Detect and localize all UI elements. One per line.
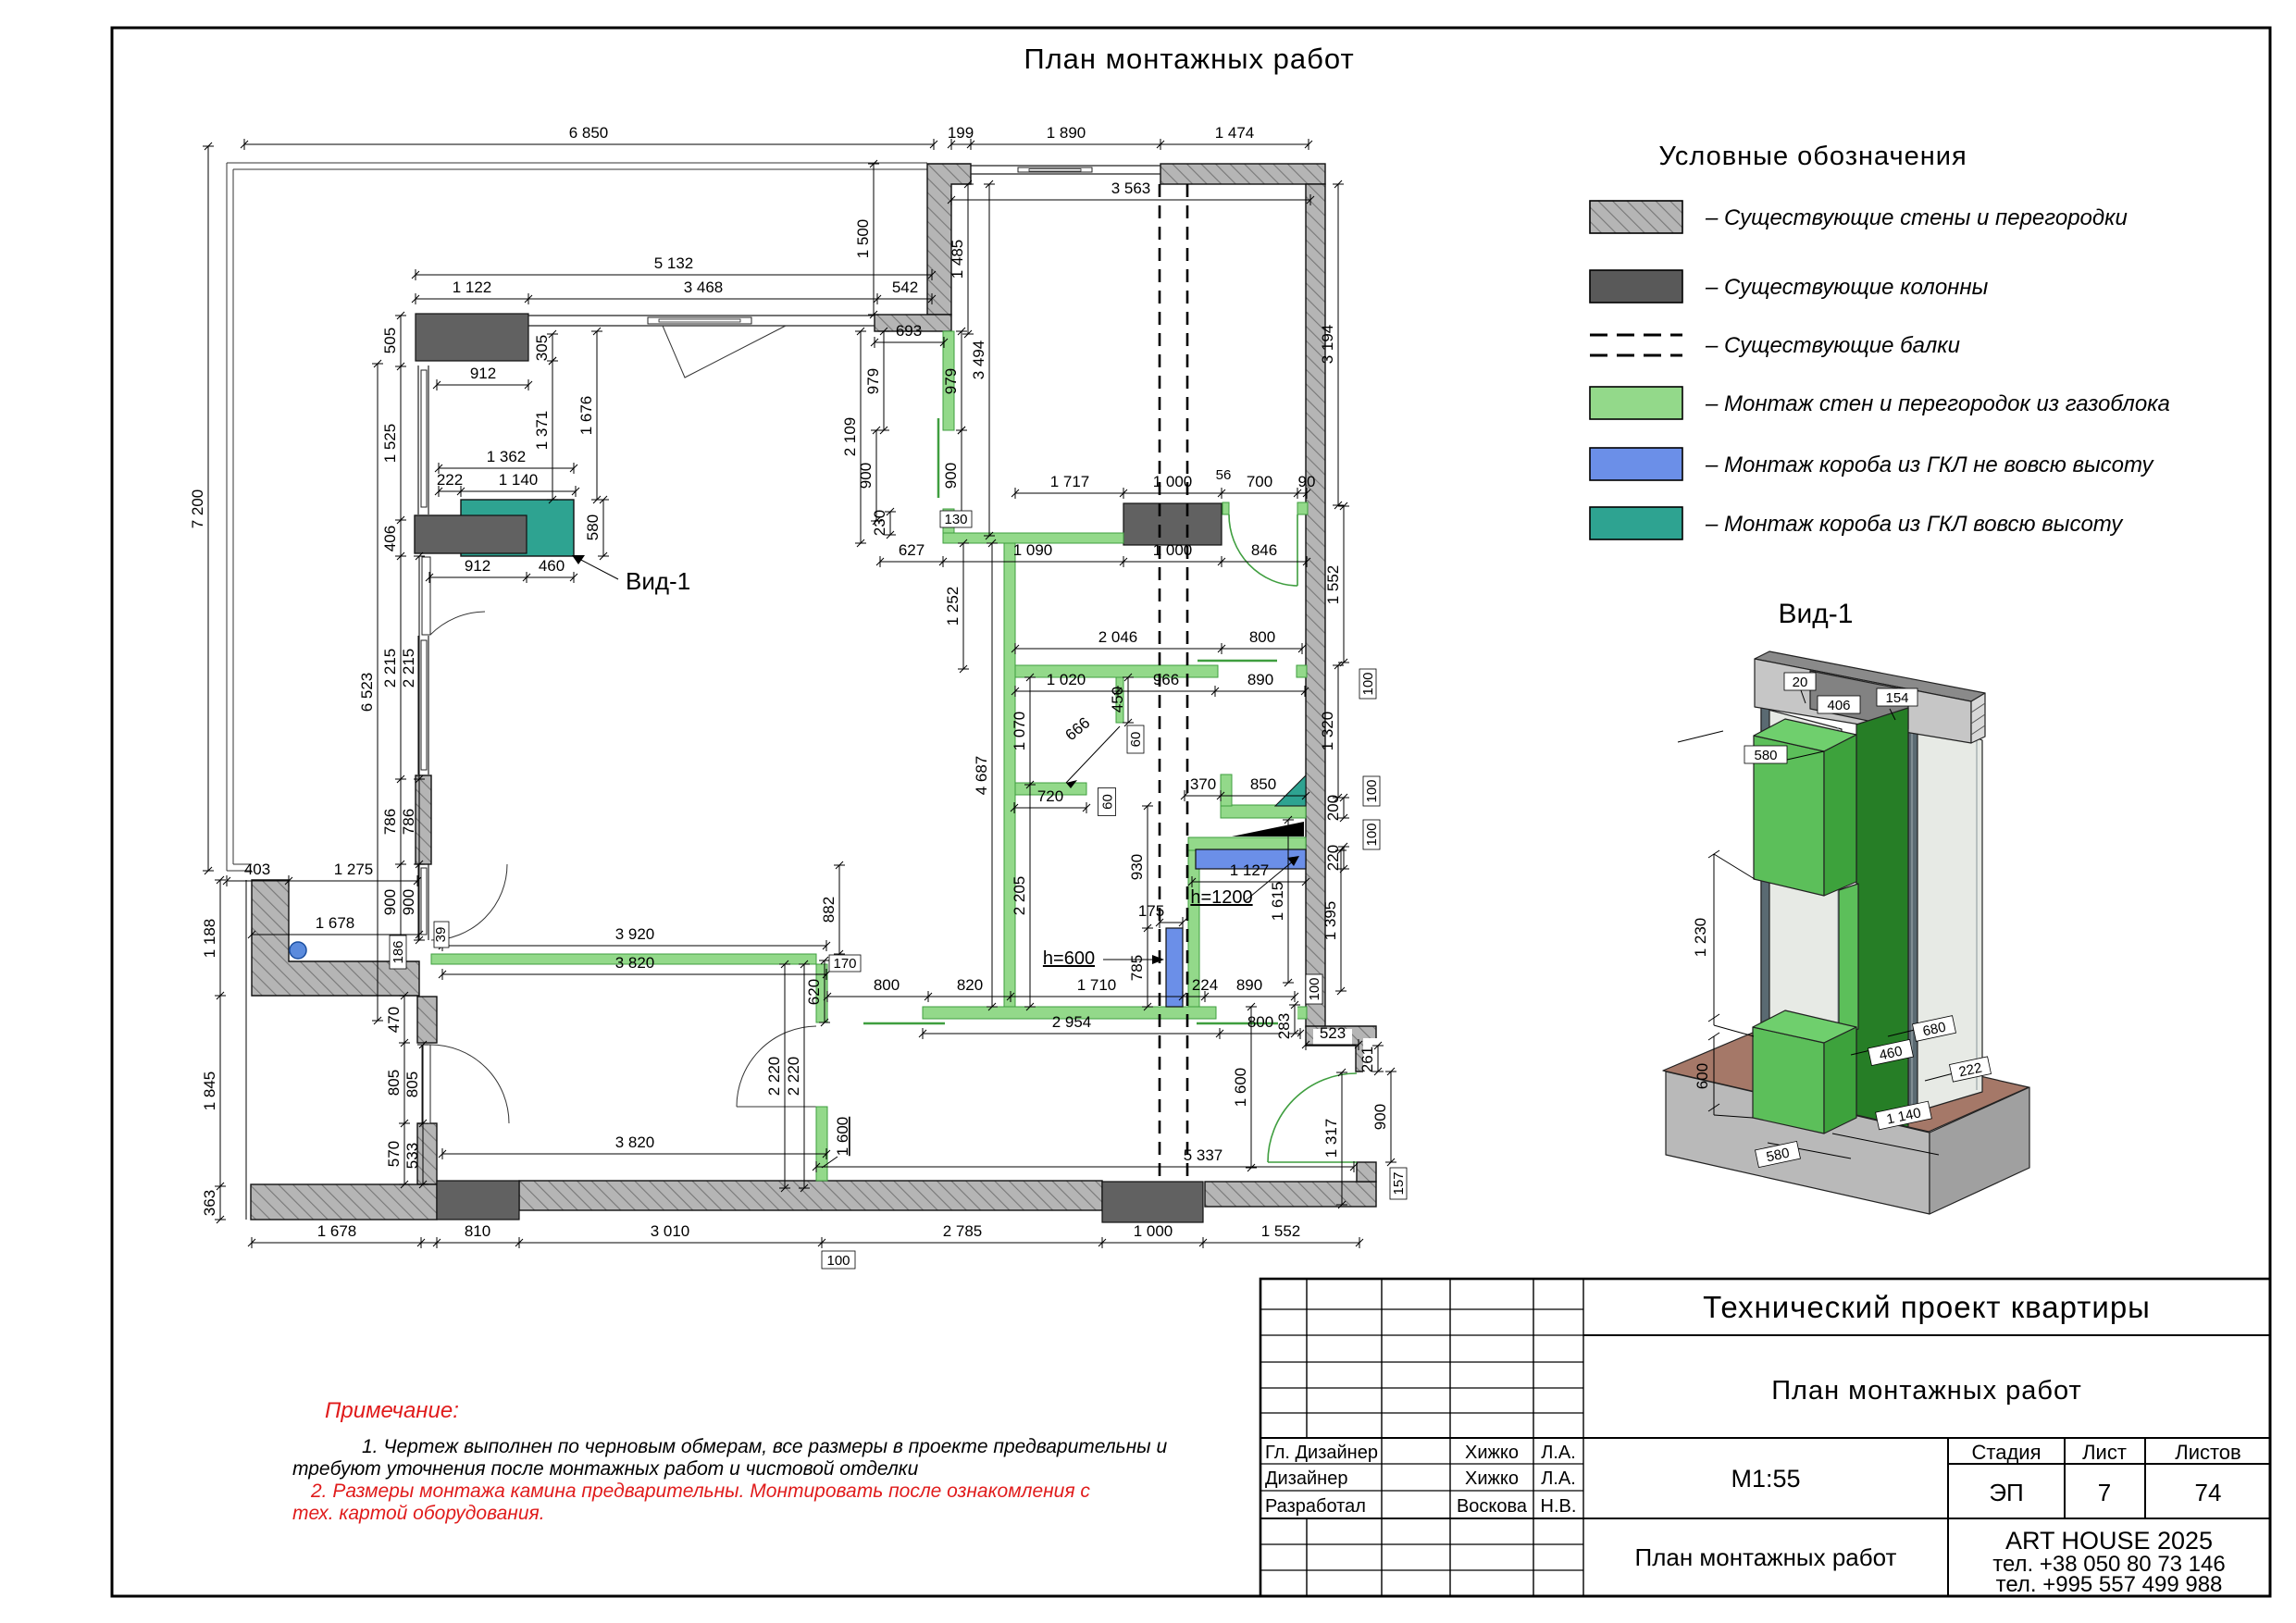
svg-text:100: 100 (1360, 672, 1376, 695)
svg-text:1 678: 1 678 (317, 1222, 357, 1240)
svg-text:1 615: 1 615 (1269, 882, 1286, 922)
svg-text:План монтажных работ: План монтажных работ (1635, 1543, 1897, 1571)
svg-text:1 070: 1 070 (1011, 712, 1028, 751)
svg-text:542: 542 (892, 279, 918, 296)
svg-text:ART HOUSE 2025: ART HOUSE 2025 (2005, 1527, 2213, 1555)
svg-text:60: 60 (1100, 794, 1116, 810)
svg-text:1 676: 1 676 (577, 396, 595, 436)
svg-text:2 215: 2 215 (381, 649, 399, 688)
svg-text:1 552: 1 552 (1324, 565, 1342, 605)
svg-text:154: 154 (1885, 690, 1908, 706)
svg-text:Л.А.: Л.А. (1541, 1443, 1576, 1463)
svg-text:627: 627 (899, 541, 925, 559)
svg-text:3 563: 3 563 (1111, 180, 1151, 197)
svg-text:912: 912 (470, 365, 496, 382)
svg-text:100: 100 (826, 1253, 850, 1269)
svg-text:3 468: 3 468 (684, 279, 724, 296)
svg-text:363: 363 (201, 1190, 218, 1216)
svg-text:700: 700 (1247, 473, 1272, 490)
svg-text:1 600: 1 600 (1232, 1068, 1249, 1108)
svg-text:h=600: h=600 (1043, 948, 1095, 969)
svg-text:199: 199 (948, 124, 974, 142)
svg-text:– Монтаж короба из ГКЛ не вовс: – Монтаж короба из ГКЛ не вовсю высоту (1705, 452, 2154, 477)
svg-text:1 500: 1 500 (854, 219, 872, 259)
svg-text:требуют уточнения после монтаж: требуют уточнения после монтажных работ … (292, 1458, 919, 1480)
svg-text:450: 450 (1109, 687, 1126, 712)
svg-text:– Монтаж стен и перегородок из: – Монтаж стен и перегородок из газоблока (1705, 391, 2170, 416)
svg-text:230: 230 (871, 510, 888, 536)
svg-text:Технический проект квартиры: Технический проект квартиры (1703, 1290, 2151, 1324)
svg-text:1 717: 1 717 (1050, 473, 1090, 490)
svg-text:План монтажных работ: План монтажных работ (1024, 43, 1354, 75)
svg-text:846: 846 (1251, 541, 1277, 559)
svg-text:930: 930 (1128, 854, 1146, 880)
svg-text:1 474: 1 474 (1215, 124, 1255, 142)
svg-text:200: 200 (1324, 795, 1342, 821)
svg-text:720: 720 (1037, 787, 1063, 805)
svg-text:2. Размеры монтажа камина пред: 2. Размеры монтажа камина предварительны… (310, 1481, 1090, 1502)
svg-text:979: 979 (942, 368, 960, 394)
svg-text:1 090: 1 090 (1013, 541, 1053, 559)
svg-text:800: 800 (1249, 628, 1275, 646)
svg-text:786: 786 (400, 809, 417, 835)
svg-text:– Монтаж короба из ГКЛ вовсю в: – Монтаж короба из ГКЛ вовсю высоту (1705, 512, 2124, 537)
svg-text:1 485: 1 485 (949, 240, 966, 279)
svg-text:90: 90 (1298, 473, 1316, 490)
svg-text:Хижко: Хижко (1465, 1443, 1519, 1463)
svg-text:Вид-1: Вид-1 (626, 567, 690, 595)
svg-text:Примечание:: Примечание: (325, 1398, 459, 1423)
svg-text:2 220: 2 220 (765, 1057, 783, 1096)
svg-text:3 494: 3 494 (970, 341, 987, 380)
svg-text:900: 900 (1371, 1104, 1389, 1130)
svg-text:3 194: 3 194 (1319, 325, 1336, 365)
svg-text:Воскова: Воскова (1457, 1496, 1528, 1517)
svg-text:1 252: 1 252 (944, 587, 962, 626)
svg-text:1 710: 1 710 (1077, 976, 1117, 994)
svg-text:900: 900 (400, 889, 417, 915)
svg-text:810: 810 (465, 1222, 490, 1240)
svg-text:533: 533 (403, 1143, 421, 1169)
svg-text:74: 74 (2195, 1479, 2222, 1506)
svg-text:1 317: 1 317 (1322, 1119, 1340, 1158)
svg-text:1. Чертеж выполнен по черновым: 1. Чертеж выполнен по черновым обмерам, … (362, 1436, 1167, 1457)
svg-text:Листов: Листов (2175, 1441, 2240, 1464)
svg-text:1 678: 1 678 (316, 914, 355, 932)
svg-text:186: 186 (391, 940, 406, 963)
svg-text:1 395: 1 395 (1322, 901, 1339, 941)
svg-text:1 140: 1 140 (499, 471, 539, 489)
svg-text:580: 580 (584, 514, 602, 540)
svg-text:Л.А.: Л.А. (1541, 1468, 1576, 1489)
svg-text:900: 900 (381, 889, 399, 915)
svg-text:403: 403 (244, 861, 270, 878)
svg-text:100: 100 (1307, 977, 1322, 1000)
svg-text:1 371: 1 371 (533, 411, 551, 451)
svg-text:Дизайнер: Дизайнер (1265, 1468, 1347, 1489)
svg-text:523: 523 (1320, 1024, 1346, 1042)
svg-text:h=1200: h=1200 (1190, 887, 1252, 908)
svg-text:2 785: 2 785 (943, 1222, 983, 1240)
svg-text:тех. картой оборудования.: тех. картой оборудования. (292, 1503, 545, 1524)
svg-text:1 000: 1 000 (1153, 473, 1193, 490)
svg-text:157: 157 (1391, 1171, 1407, 1195)
svg-text:– Существующие балки: – Существующие балки (1705, 333, 1960, 358)
svg-text:1 600: 1 600 (834, 1117, 851, 1157)
svg-text:1 552: 1 552 (1261, 1222, 1301, 1240)
svg-text:979: 979 (864, 368, 882, 394)
svg-text:Разработал: Разработал (1265, 1496, 1366, 1517)
svg-text:570: 570 (385, 1141, 403, 1167)
svg-text:60: 60 (1128, 732, 1144, 748)
svg-text:170: 170 (833, 956, 856, 972)
svg-text:850: 850 (1250, 775, 1276, 793)
svg-text:Н.В.: Н.В. (1541, 1496, 1577, 1517)
svg-text:Лист: Лист (2082, 1441, 2127, 1464)
svg-text:912: 912 (465, 557, 490, 575)
svg-text:5 337: 5 337 (1184, 1146, 1223, 1164)
svg-text:Гл. Дизайнер: Гл. Дизайнер (1265, 1443, 1378, 1463)
svg-text:1 362: 1 362 (487, 448, 527, 465)
svg-text:ЭП: ЭП (1989, 1479, 2023, 1506)
svg-text:2 215: 2 215 (400, 649, 417, 688)
svg-text:7 200: 7 200 (189, 489, 206, 529)
svg-text:1 890: 1 890 (1047, 124, 1086, 142)
svg-text:406: 406 (1827, 698, 1850, 713)
svg-text:370: 370 (1190, 775, 1216, 793)
svg-text:Хижко: Хижко (1465, 1468, 1519, 1489)
svg-text:1 188: 1 188 (201, 919, 218, 959)
svg-text:– Существующие стены и перегор: – Существующие стены и перегородки (1705, 205, 2128, 230)
svg-text:786: 786 (381, 809, 399, 835)
svg-text:620: 620 (805, 979, 823, 1005)
svg-text:1 230: 1 230 (1692, 918, 1709, 958)
svg-text:– Существующие колонны: – Существующие колонны (1705, 275, 1989, 300)
svg-text:План монтажных работ: План монтажных работ (1771, 1376, 2082, 1406)
svg-text:505: 505 (381, 328, 399, 353)
svg-text:283: 283 (1275, 1013, 1293, 1039)
svg-text:2 954: 2 954 (1052, 1013, 1092, 1031)
svg-text:3 820: 3 820 (615, 1134, 655, 1151)
svg-text:805: 805 (385, 1070, 403, 1096)
svg-text:1 275: 1 275 (334, 861, 374, 878)
svg-text:4 687: 4 687 (973, 756, 990, 796)
svg-text:3 920: 3 920 (615, 925, 655, 943)
svg-text:5 132: 5 132 (654, 254, 694, 272)
svg-text:20: 20 (1793, 675, 1808, 690)
svg-text:2 205: 2 205 (1011, 876, 1028, 916)
svg-text:1 525: 1 525 (381, 424, 399, 464)
svg-text:39: 39 (433, 927, 449, 943)
svg-text:100: 100 (1364, 779, 1380, 802)
svg-text:600: 600 (1694, 1063, 1711, 1089)
svg-text:785: 785 (1128, 955, 1146, 981)
svg-text:1 020: 1 020 (1047, 671, 1086, 688)
svg-text:1 320: 1 320 (1319, 712, 1336, 751)
svg-text:261: 261 (1359, 1047, 1376, 1072)
svg-text:470: 470 (385, 1007, 403, 1033)
svg-text:7: 7 (2098, 1479, 2111, 1506)
svg-text:224: 224 (1192, 976, 1218, 994)
svg-text:693: 693 (896, 322, 922, 340)
svg-text:2 109: 2 109 (841, 417, 859, 457)
svg-text:100: 100 (1364, 823, 1380, 846)
svg-text:130: 130 (944, 512, 967, 527)
svg-text:805: 805 (403, 1072, 421, 1097)
svg-text:175: 175 (1138, 902, 1164, 920)
svg-text:1 000: 1 000 (1134, 1222, 1173, 1240)
svg-text:1 122: 1 122 (453, 279, 492, 296)
svg-text:966: 966 (1153, 671, 1179, 688)
svg-text:1 127: 1 127 (1230, 861, 1270, 879)
svg-text:Условные обозначения: Условные обозначения (1658, 142, 1967, 171)
svg-text:Вид-1: Вид-1 (1779, 599, 1854, 629)
svg-text:460: 460 (539, 557, 565, 575)
svg-text:305: 305 (533, 335, 551, 361)
svg-text:900: 900 (942, 463, 960, 489)
svg-text:М1:55: М1:55 (1731, 1465, 1800, 1493)
svg-text:2 220: 2 220 (785, 1057, 802, 1096)
svg-text:3 820: 3 820 (615, 954, 655, 972)
svg-text:3 010: 3 010 (651, 1222, 690, 1240)
svg-text:тел. +995 557 499 988: тел. +995 557 499 988 (1996, 1572, 2223, 1597)
svg-text:882: 882 (820, 897, 838, 923)
svg-text:1 845: 1 845 (201, 1072, 218, 1111)
svg-text:2 046: 2 046 (1098, 628, 1138, 646)
svg-text:220: 220 (1324, 845, 1342, 871)
svg-text:580: 580 (1754, 748, 1777, 763)
svg-text:890: 890 (1247, 671, 1273, 688)
svg-text:Стадия: Стадия (1972, 1441, 2042, 1464)
svg-text:890: 890 (1236, 976, 1262, 994)
svg-text:1 000: 1 000 (1153, 541, 1193, 559)
svg-text:406: 406 (381, 526, 399, 551)
svg-text:6 850: 6 850 (569, 124, 609, 142)
svg-text:222: 222 (437, 471, 463, 489)
svg-text:900: 900 (857, 463, 875, 489)
svg-text:56: 56 (1216, 467, 1232, 483)
svg-text:820: 820 (957, 976, 983, 994)
svg-text:6 523: 6 523 (358, 673, 376, 712)
svg-text:800: 800 (874, 976, 900, 994)
